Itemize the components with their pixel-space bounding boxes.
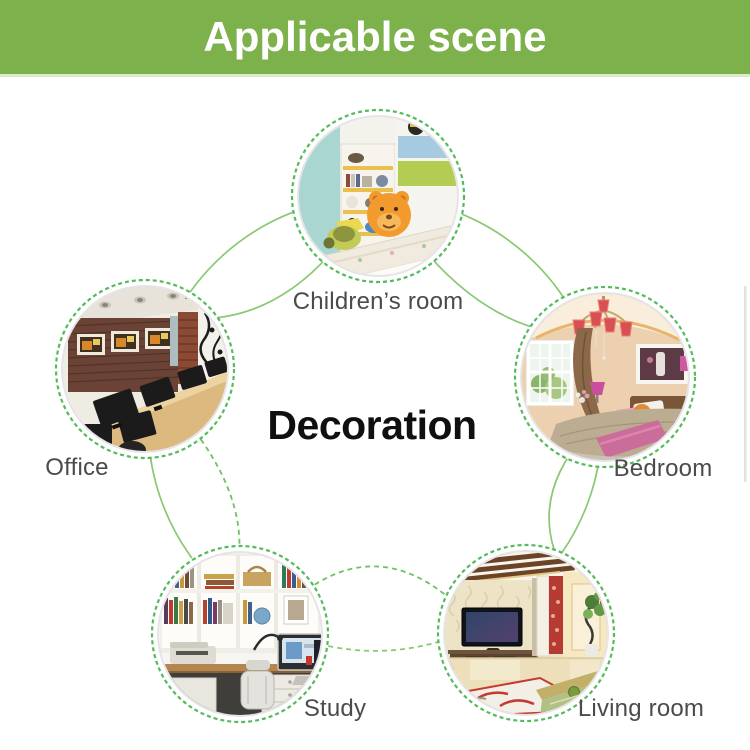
arc-study-living xyxy=(300,566,455,603)
scene-label-bedroom: Bedroom xyxy=(614,455,713,483)
edge-artifact-line xyxy=(744,286,747,482)
scene-label-childrens-room: Children’s room xyxy=(293,288,464,316)
scene-diagram xyxy=(0,0,750,750)
arc-office-study xyxy=(190,425,239,565)
scene-circle-office xyxy=(56,280,234,459)
scene-label-office: Office xyxy=(45,454,108,482)
scene-label-living-room: Living room xyxy=(578,695,704,723)
scene-circle-childrens-room xyxy=(292,110,464,308)
scene-circle-bedroom xyxy=(515,287,695,467)
center-label: Decoration xyxy=(267,402,476,449)
scene-circle-study xyxy=(152,546,328,722)
applicable-scene-banner: Applicable scene xyxy=(0,0,750,750)
scene-label-study: Study xyxy=(304,695,366,723)
